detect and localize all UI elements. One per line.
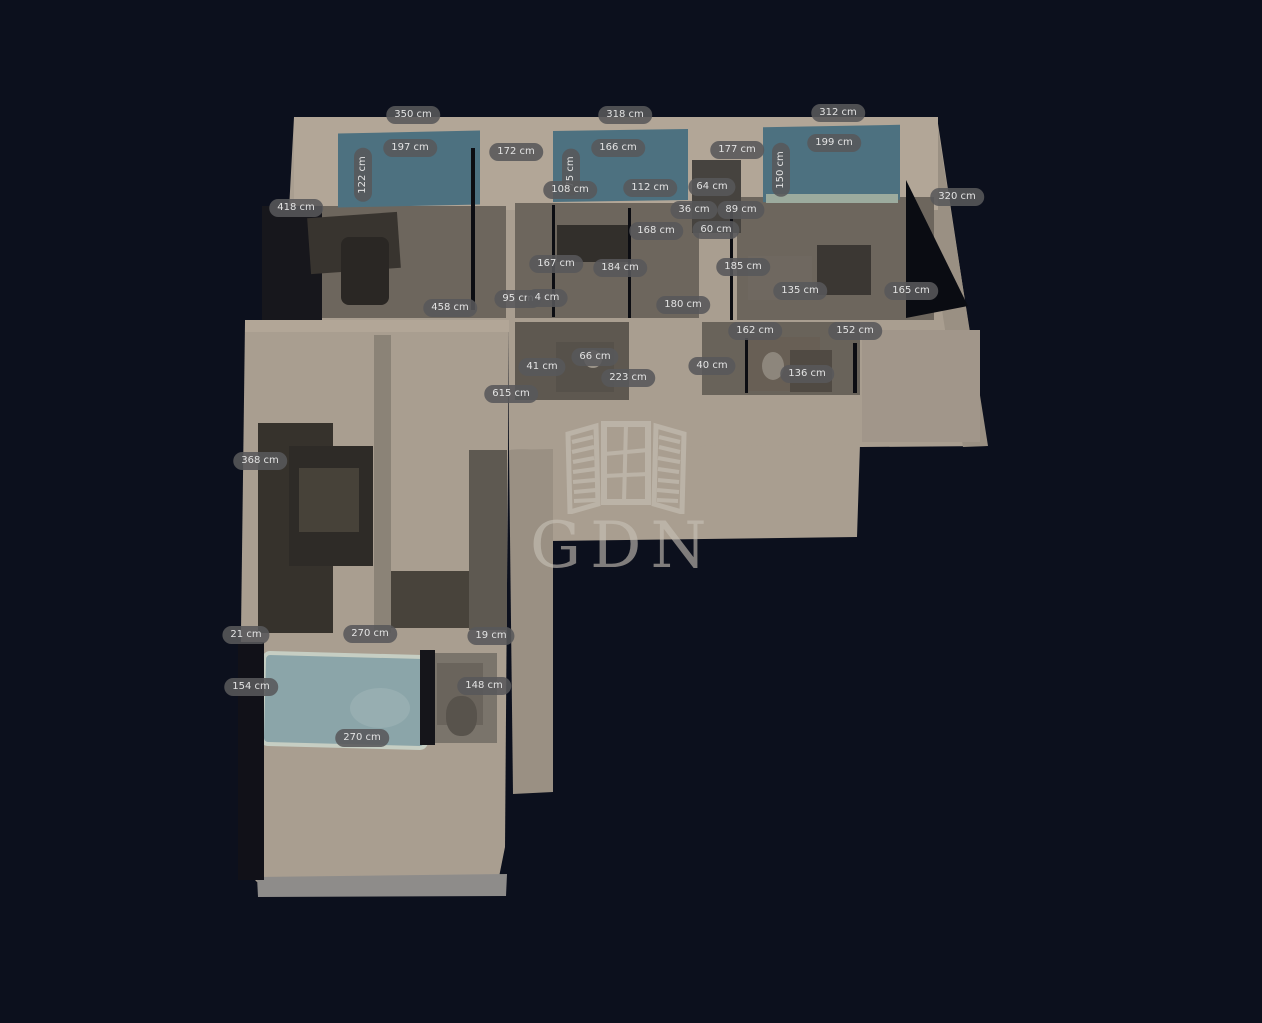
watermark-text: GDN bbox=[530, 514, 750, 578]
wall-line bbox=[471, 148, 475, 310]
appliance-strip bbox=[469, 450, 507, 630]
dimension-label: 167 cm bbox=[529, 255, 583, 273]
gdn-watermark: GDN bbox=[530, 418, 750, 583]
dimension-label: 135 cm bbox=[773, 282, 827, 300]
dimension-label: 136 cm bbox=[780, 365, 834, 383]
dimension-label: 320 cm bbox=[930, 188, 984, 206]
dimension-label: 150 cm bbox=[772, 143, 790, 197]
dimension-label: 4 cm bbox=[527, 289, 568, 307]
dimension-label: 148 cm bbox=[457, 677, 511, 695]
dimension-label: 318 cm bbox=[598, 106, 652, 124]
dimension-label: 162 cm bbox=[728, 322, 782, 340]
wall-line bbox=[853, 343, 857, 393]
dimension-label: 36 cm bbox=[670, 201, 717, 219]
dining-table-top bbox=[299, 468, 359, 532]
dimension-label: 180 cm bbox=[656, 296, 710, 314]
dimension-label: 154 cm bbox=[224, 678, 278, 696]
counter-strip bbox=[374, 335, 391, 633]
dimension-label: 21 cm bbox=[222, 626, 269, 644]
dimension-label: 122 cm bbox=[354, 148, 372, 202]
right-wing-floor bbox=[862, 330, 980, 442]
dimension-label: 458 cm bbox=[423, 299, 477, 317]
dimension-label: 19 cm bbox=[467, 627, 514, 645]
dimension-label: 165 cm bbox=[884, 282, 938, 300]
toilet bbox=[446, 696, 477, 736]
office-chair bbox=[341, 237, 389, 305]
dimension-label: 66 cm bbox=[571, 348, 618, 366]
dimension-label: 197 cm bbox=[383, 139, 437, 157]
dimension-label: 112 cm bbox=[623, 179, 677, 197]
dimension-label: 172 cm bbox=[489, 143, 543, 161]
dimension-label: 108 cm bbox=[543, 181, 597, 199]
dimension-label: 89 cm bbox=[717, 201, 764, 219]
dimension-label: 270 cm bbox=[335, 729, 389, 747]
dimension-label: 168 cm bbox=[629, 222, 683, 240]
dimension-label: 152 cm bbox=[828, 322, 882, 340]
dimension-label: 64 cm bbox=[688, 178, 735, 196]
dimension-label: 350 cm bbox=[386, 106, 440, 124]
dimension-label: 270 cm bbox=[343, 625, 397, 643]
window-shutters-icon bbox=[560, 418, 692, 514]
left-wing-wall-top bbox=[245, 320, 509, 332]
dimension-label: 615 cm bbox=[484, 385, 538, 403]
dimension-label: 177 cm bbox=[710, 141, 764, 159]
dimension-label: 40 cm bbox=[688, 357, 735, 375]
dimension-label: 166 cm bbox=[591, 139, 645, 157]
bathtub-water-highlight bbox=[350, 688, 410, 728]
dimension-label: 312 cm bbox=[811, 104, 865, 122]
dimension-label: 199 cm bbox=[807, 134, 861, 152]
floorplan-3d-view: GDN 350 cm318 cm312 cm197 cm172 cm166 cm… bbox=[0, 0, 1262, 1023]
bath-wall-gap bbox=[420, 650, 435, 745]
dimension-label: 41 cm bbox=[518, 358, 565, 376]
dimension-label: 185 cm bbox=[716, 258, 770, 276]
dimension-label: 223 cm bbox=[601, 369, 655, 387]
dimension-label: 60 cm bbox=[692, 221, 739, 239]
wall-line bbox=[745, 338, 748, 393]
dimension-label: 368 cm bbox=[233, 452, 287, 470]
dimension-label: 184 cm bbox=[593, 259, 647, 277]
dimension-label: 418 cm bbox=[269, 199, 323, 217]
